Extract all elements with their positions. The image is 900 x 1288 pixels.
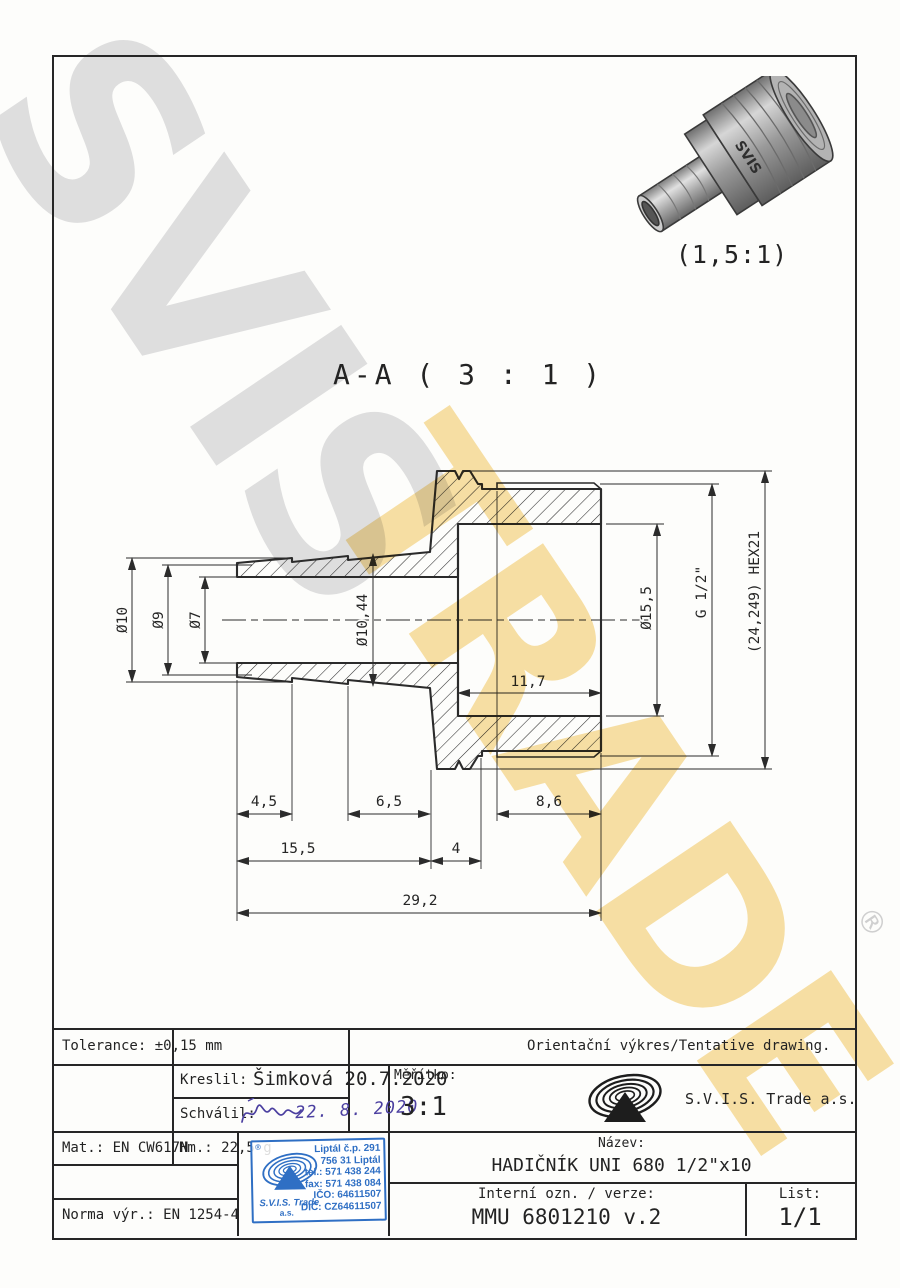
titleblock-line xyxy=(388,1182,855,1184)
stamp-address-1: Liptál č.p. 291 xyxy=(300,1143,381,1156)
nazev-value: HADIČNÍK UNI 680 1/2"x10 xyxy=(388,1155,855,1176)
interni-label: Interní ozn. / verze: xyxy=(388,1186,745,1202)
tentative-drawing-note: Orientační výkres/Tentative drawing. xyxy=(527,1038,830,1054)
stamp-phone: tel.: 571 438 244 xyxy=(300,1166,381,1179)
kreslil-label: Kreslil: xyxy=(180,1072,247,1088)
drawing-sheet: { "watermark": { "line1": "SVIS", "line2… xyxy=(0,0,900,1288)
nazev-label: Název: xyxy=(388,1136,855,1151)
norma-value: Norma výr.: EN 1254-4 xyxy=(62,1207,239,1223)
tolerance-value: Tolerance: ±0,15 mm xyxy=(62,1038,222,1054)
titleblock-line xyxy=(52,1198,239,1200)
list-value: 1/1 xyxy=(745,1203,855,1231)
meritko-label: Měřítko: xyxy=(394,1068,457,1083)
material-value: Mat.: EN CW617N xyxy=(62,1140,188,1156)
company-stamp: ® Liptál č.p. 291 756 31 Liptál tel.: 57… xyxy=(250,1138,387,1224)
stamp-company-suffix: a.s. xyxy=(280,1208,294,1218)
list-label: List: xyxy=(745,1186,855,1202)
company-name: S.V.I.S. Trade a.s. xyxy=(685,1090,857,1108)
company-logo xyxy=(580,1070,670,1128)
interni-value: MMU 6801210 v.2 xyxy=(388,1205,745,1229)
titleblock-line xyxy=(52,1164,239,1166)
meritko-value: 3:1 xyxy=(400,1092,447,1122)
